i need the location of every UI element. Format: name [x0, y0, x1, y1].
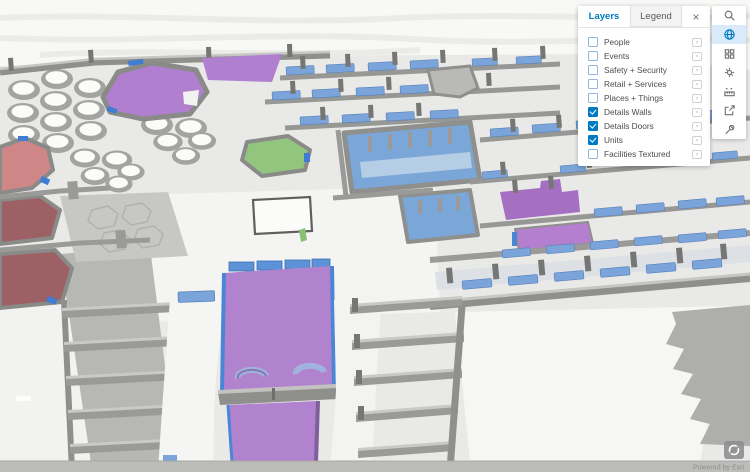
layer-options-icon[interactable]: [692, 150, 702, 159]
layer-options-icon[interactable]: [692, 52, 702, 61]
layer-label: Events: [604, 51, 692, 61]
layer-label: People: [604, 37, 692, 47]
checkbox[interactable]: [588, 51, 598, 61]
checkbox[interactable]: [588, 135, 598, 145]
layer-options-icon[interactable]: [692, 122, 702, 131]
layer-label: Places + Things: [604, 93, 692, 103]
restroom-block-a[interactable]: [344, 122, 480, 192]
layer-row-events[interactable]: Events: [588, 49, 702, 63]
layer-label: Details Doors: [604, 121, 692, 131]
layers-panel: Layers Legend × People Events Safety + S…: [578, 6, 710, 166]
globe-icon[interactable]: [712, 25, 746, 44]
unit-maroon-2[interactable]: [0, 250, 72, 308]
layer-row-places-things[interactable]: Places + Things: [588, 91, 702, 105]
layer-row-details-doors[interactable]: Details Doors: [588, 119, 702, 133]
atrium-corridor-lower[interactable]: [228, 401, 318, 462]
tab-legend[interactable]: Legend: [630, 6, 682, 27]
layer-row-units[interactable]: Units: [588, 133, 702, 147]
layer-options-icon[interactable]: [692, 80, 702, 89]
layer-row-facilities-textured[interactable]: Facilities Textured: [588, 147, 702, 161]
tab-layers[interactable]: Layers: [578, 6, 630, 27]
layer-options-icon[interactable]: [692, 108, 702, 117]
layer-list: People Events Safety + Security Retail +…: [578, 28, 710, 165]
layer-row-details-walls[interactable]: Details Walls: [588, 105, 702, 119]
tools-wrench-icon[interactable]: [712, 120, 746, 139]
layer-options-icon[interactable]: [692, 94, 702, 103]
checkbox[interactable]: [588, 93, 598, 103]
layer-label: Retail + Services: [604, 79, 692, 89]
checkbox[interactable]: [588, 37, 598, 47]
measure-icon[interactable]: [712, 82, 746, 101]
layer-label: Safety + Security: [604, 65, 692, 75]
atrium-purple[interactable]: [218, 259, 338, 405]
attribution-bar: Powered by Esri: [0, 461, 750, 472]
checkbox[interactable]: [588, 121, 598, 131]
checkbox[interactable]: [588, 149, 598, 159]
checkbox[interactable]: [588, 107, 598, 117]
search-icon[interactable]: [712, 6, 746, 25]
hex-floor: [60, 192, 188, 262]
basemap-grid-icon[interactable]: [712, 44, 746, 63]
layer-options-icon[interactable]: [692, 38, 702, 47]
esri-logo-icon[interactable]: [724, 441, 744, 459]
layer-label: Units: [604, 135, 692, 145]
unit-green[interactable]: [242, 136, 310, 176]
checkbox[interactable]: [588, 79, 598, 89]
panel-tabs: Layers Legend ×: [578, 6, 710, 28]
settings-gear-icon[interactable]: [712, 63, 746, 82]
unit-purple-top[interactable]: [202, 54, 282, 82]
round-platform: [428, 66, 478, 97]
unit-maroon-1[interactable]: [0, 196, 60, 244]
close-icon[interactable]: ×: [682, 6, 710, 27]
layer-options-icon[interactable]: [692, 66, 702, 75]
restroom-block-b[interactable]: [400, 190, 478, 242]
layer-label: Facilities Textured: [604, 149, 692, 159]
layer-row-retail-services[interactable]: Retail + Services: [588, 77, 702, 91]
layer-options-icon[interactable]: [692, 136, 702, 145]
share-icon[interactable]: [712, 101, 746, 120]
checkbox[interactable]: [588, 65, 598, 75]
layer-label: Details Walls: [604, 107, 692, 117]
layer-row-people[interactable]: People: [588, 35, 702, 49]
map-toolbar: [712, 6, 746, 139]
layer-row-safety-security[interactable]: Safety + Security: [588, 63, 702, 77]
attribution-text: Powered by Esri: [693, 465, 744, 472]
